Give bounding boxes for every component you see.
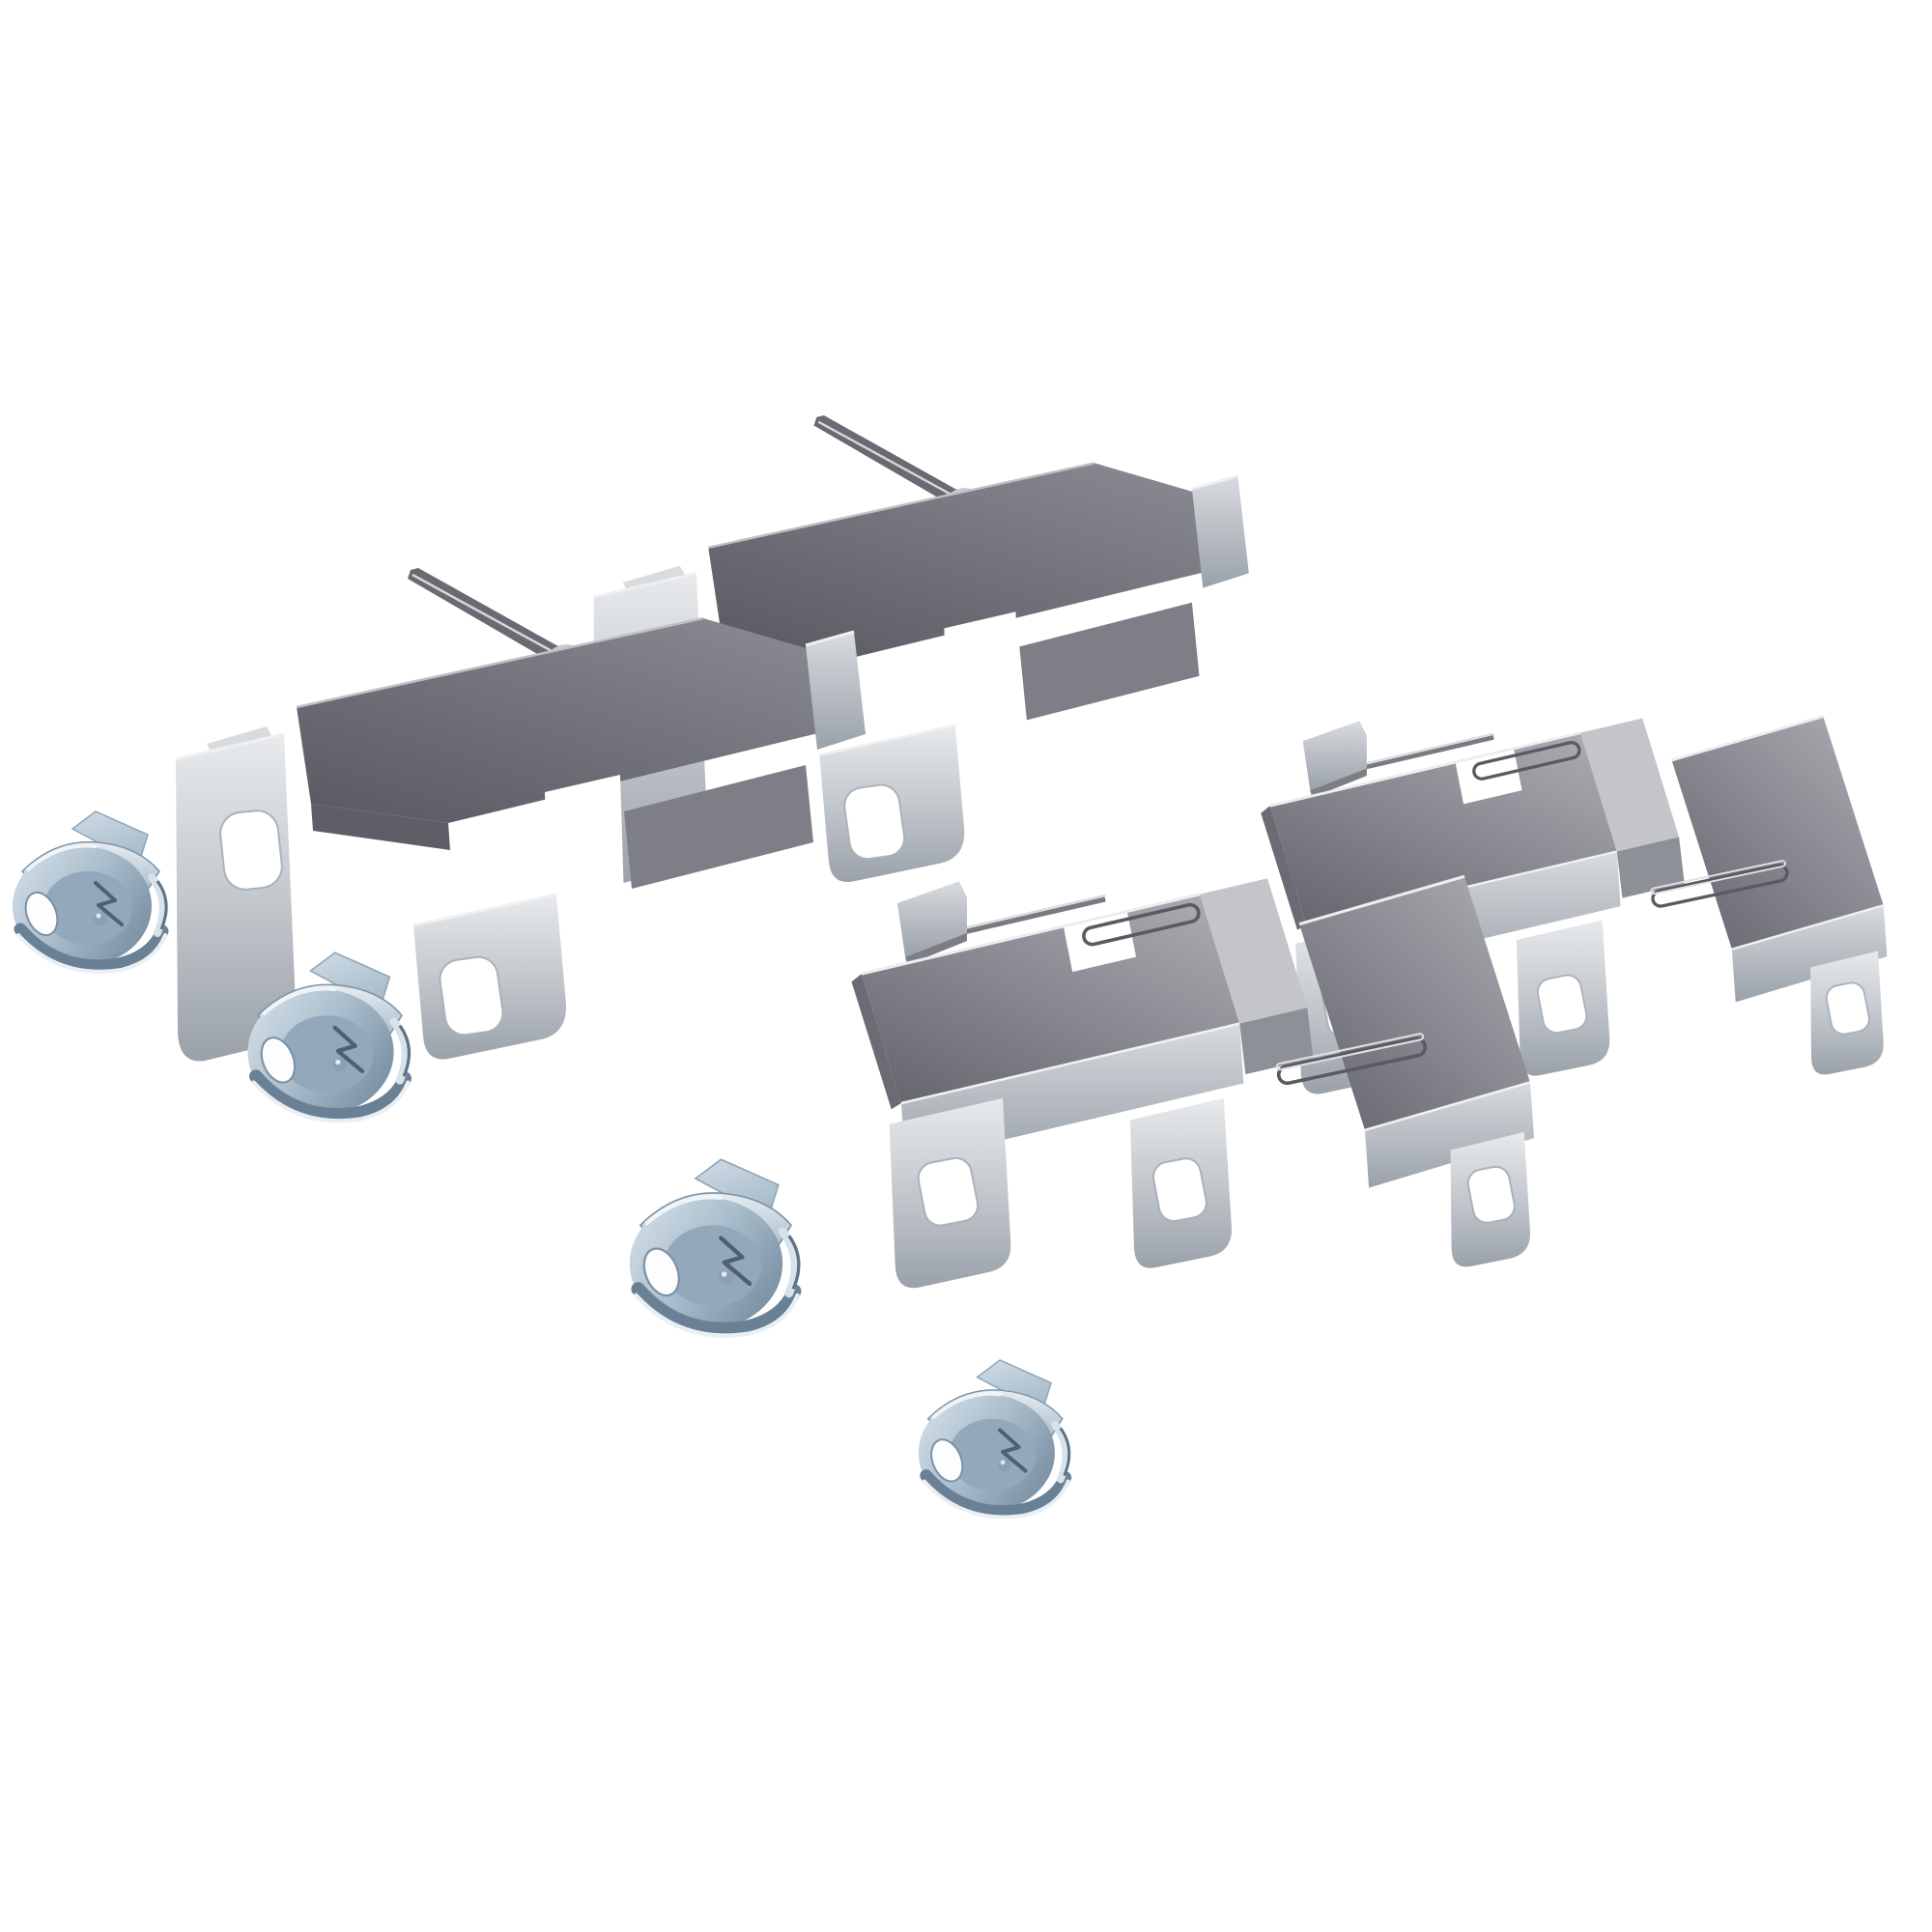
spring-clip-1	[13, 811, 166, 972]
spring-clip-3	[630, 1159, 799, 1335]
spring-clip-4	[919, 1360, 1069, 1517]
product-photo-stage	[0, 0, 1932, 1932]
brake-hardware-photo	[0, 0, 1932, 1932]
abutment-clip-front-left	[176, 568, 866, 1061]
abutment-clip-center	[852, 876, 1535, 1288]
